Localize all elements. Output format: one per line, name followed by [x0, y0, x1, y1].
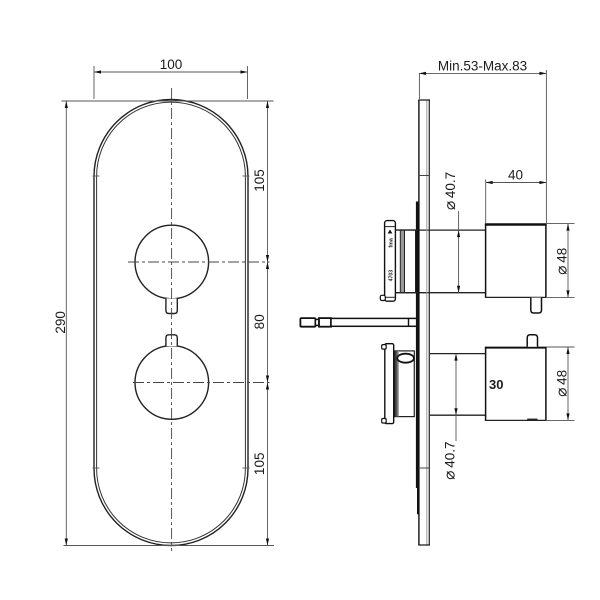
svg-text:105: 105 [252, 453, 267, 476]
svg-text:Min.53-Max.83: Min.53-Max.83 [438, 58, 527, 73]
svg-text:100: 100 [160, 57, 183, 72]
svg-text:40: 40 [508, 167, 523, 182]
svg-text:4703: 4703 [388, 270, 394, 282]
svg-text:fma: fma [389, 238, 395, 247]
svg-text:290: 290 [53, 311, 68, 334]
svg-text:80: 80 [252, 314, 267, 329]
svg-text:⌀ 48: ⌀ 48 [553, 370, 570, 397]
svg-text:30: 30 [489, 377, 503, 392]
svg-text:⌀ 40.7: ⌀ 40.7 [442, 442, 459, 480]
svg-text:105: 105 [252, 169, 267, 192]
svg-text:⌀ 40.7: ⌀ 40.7 [442, 172, 459, 210]
svg-text:⌀ 48: ⌀ 48 [553, 248, 570, 275]
